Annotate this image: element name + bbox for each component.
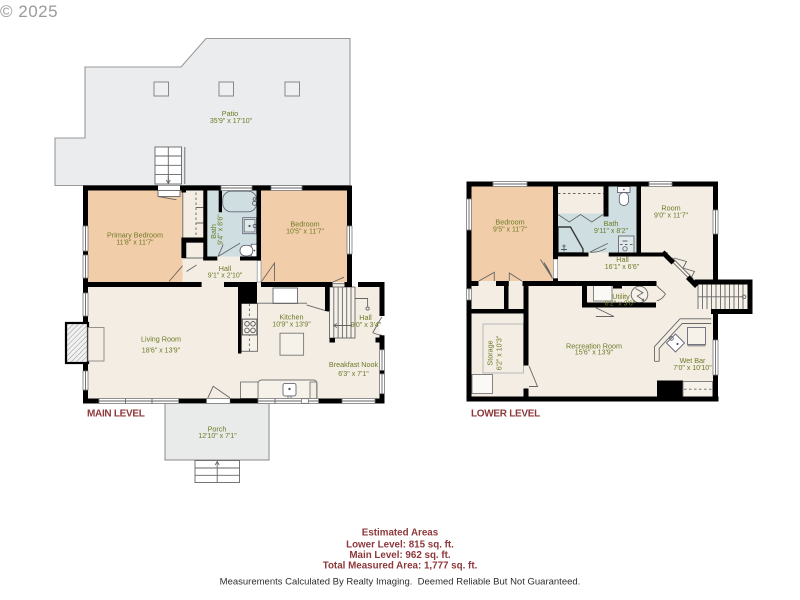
svg-text:9'5" x 11'7": 9'5" x 11'7" xyxy=(493,226,527,233)
svg-text:Estimated Areas: Estimated Areas xyxy=(362,527,439,538)
svg-text:Patio: Patio xyxy=(222,109,238,118)
svg-text:Storage: Storage xyxy=(486,340,495,365)
svg-text:Bedroom: Bedroom xyxy=(290,220,319,229)
svg-text:Wet Bar: Wet Bar xyxy=(680,356,706,365)
svg-text:Primary Bedroom: Primary Bedroom xyxy=(107,231,163,240)
svg-text:11'8" x 11'7": 11'8" x 11'7" xyxy=(116,239,154,246)
svg-text:6'3" x 7'1": 6'3" x 7'1" xyxy=(338,371,369,378)
svg-text:Bath: Bath xyxy=(604,219,619,228)
svg-text:Breakfast Nook: Breakfast Nook xyxy=(329,360,379,369)
svg-text:Bedroom: Bedroom xyxy=(495,218,524,227)
svg-text:9'11" x 8'2": 9'11" x 8'2" xyxy=(594,228,628,235)
svg-text:10'9" x 13'9": 10'9" x 13'9" xyxy=(272,321,311,328)
svg-text:Kitchen: Kitchen xyxy=(280,313,304,322)
svg-text:15'6" x 13'9": 15'6" x 13'9" xyxy=(575,349,614,356)
svg-text:Hall: Hall xyxy=(616,255,629,264)
svg-text:Hall: Hall xyxy=(359,313,372,322)
svg-text:16'1" x 6'6": 16'1" x 6'6" xyxy=(605,264,640,271)
svg-text:LOWER LEVEL: LOWER LEVEL xyxy=(471,409,540,420)
svg-text:MAIN LEVEL: MAIN LEVEL xyxy=(87,409,145,420)
svg-text:35'9" x 17'10": 35'9" x 17'10" xyxy=(210,118,253,125)
svg-text:12'10" x 7'1": 12'10" x 7'1" xyxy=(198,433,237,440)
svg-text:6'2" x 10'3": 6'2" x 10'3" xyxy=(497,335,504,370)
svg-text:Measurements Calculated By Rea: Measurements Calculated By Realty Imagin… xyxy=(220,577,581,588)
svg-text:9'4" x 8'6": 9'4" x 8'6" xyxy=(218,214,225,245)
svg-text:9'0" x 11'7": 9'0" x 11'7" xyxy=(654,212,688,219)
svg-text:9'0" x 3'4": 9'0" x 3'4" xyxy=(351,322,382,329)
svg-text:8'2" x 3'6": 8'2" x 3'6" xyxy=(605,300,636,307)
svg-text:Lower Level: 815 sq. ft.: Lower Level: 815 sq. ft. xyxy=(346,539,454,550)
svg-text:Total Measured Area: 1,777 sq.: Total Measured Area: 1,777 sq. ft. xyxy=(323,560,478,571)
svg-text:Living Room: Living Room xyxy=(141,335,181,344)
svg-text:9'1" x 2'10": 9'1" x 2'10" xyxy=(208,273,243,280)
svg-text:7'0" x 10'10": 7'0" x 10'10" xyxy=(673,365,712,372)
svg-text:10'5" x 11'7": 10'5" x 11'7" xyxy=(286,228,324,235)
svg-text:Room: Room xyxy=(661,204,680,213)
svg-text:18'6" x 13'9": 18'6" x 13'9" xyxy=(142,347,181,354)
svg-text:© 2025: © 2025 xyxy=(0,2,58,21)
